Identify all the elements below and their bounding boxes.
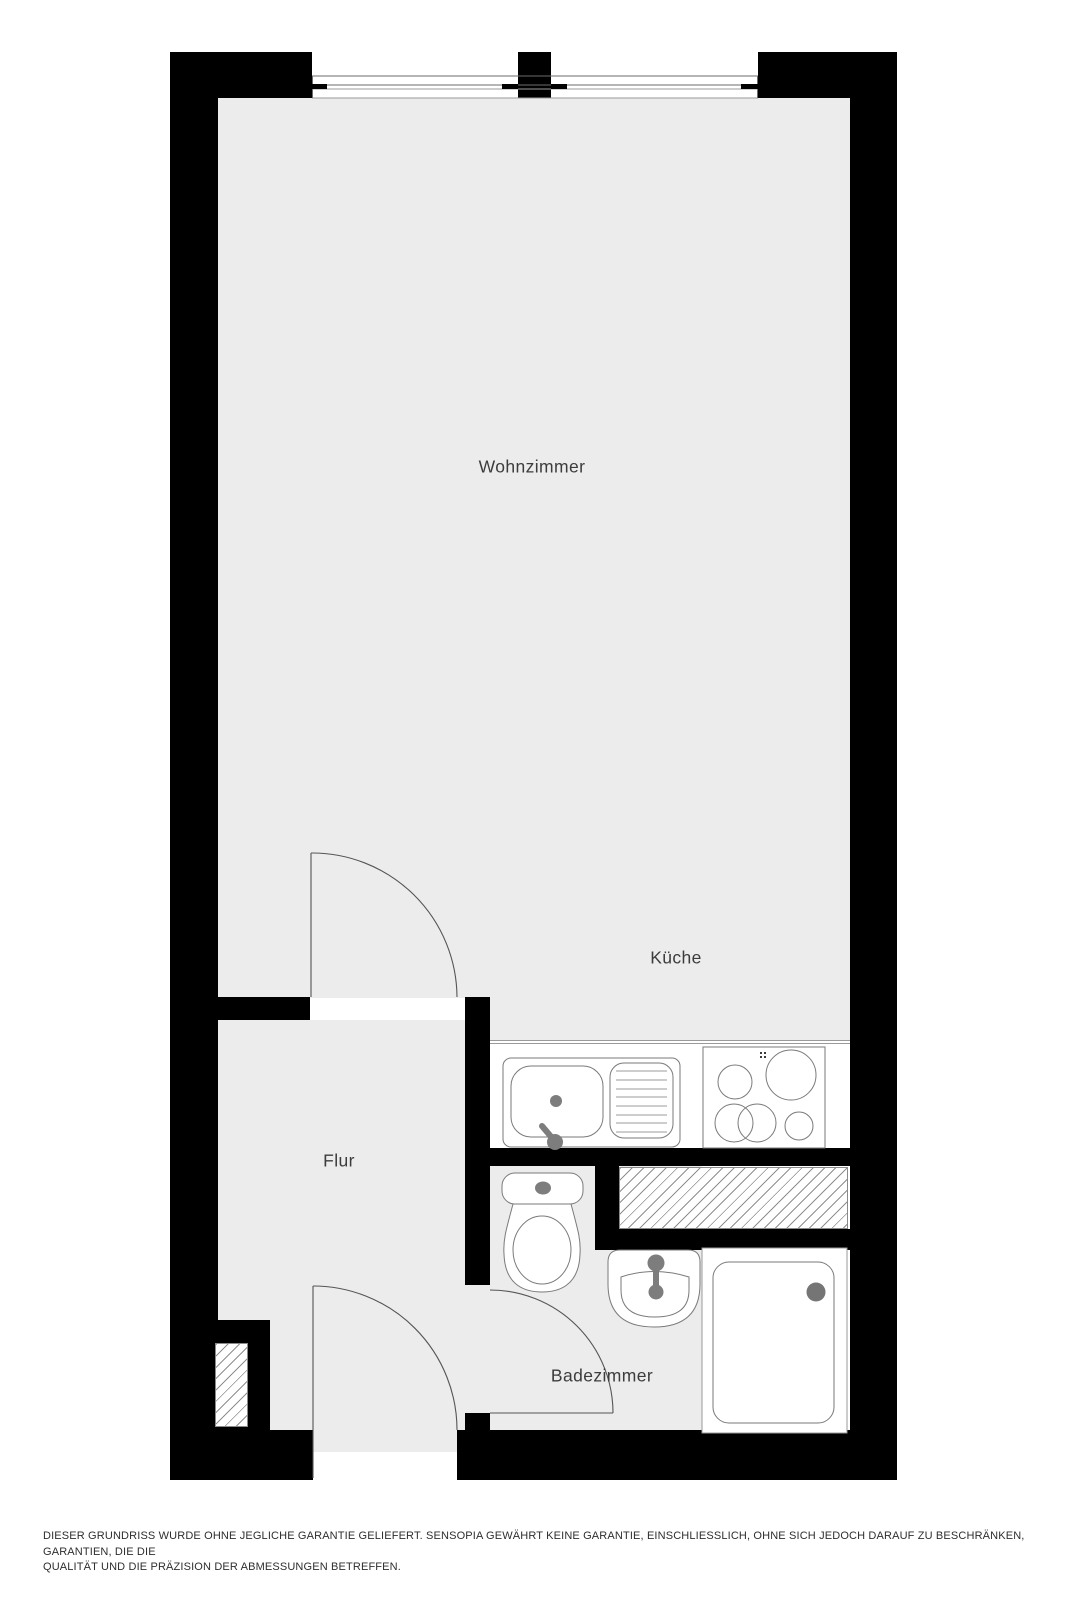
room-label-badezimmer: Badezimmer xyxy=(551,1366,653,1387)
entrance-door xyxy=(313,1286,457,1478)
interior-door xyxy=(311,853,457,997)
bathroom-door-swing-arc xyxy=(490,1290,613,1413)
kitchen-sink-drain xyxy=(550,1095,562,1107)
floor-plan-page: Wohnzimmer Küche Flur Badezimmer DIESER … xyxy=(0,0,1067,1600)
disclaimer-line-1: DIESER GRUNDRISS WURDE OHNE JEGLICHE GAR… xyxy=(43,1529,1033,1560)
room-label-flur: Flur xyxy=(323,1151,355,1172)
fixtures-layer xyxy=(0,0,1067,1600)
disclaimer: DIESER GRUNDRISS WURDE OHNE JEGLICHE GAR… xyxy=(43,1529,1033,1576)
shower xyxy=(702,1248,847,1433)
window xyxy=(310,76,758,98)
toilet xyxy=(502,1173,583,1292)
washbasin xyxy=(608,1250,700,1327)
shower-tray xyxy=(702,1248,847,1433)
window-tick xyxy=(741,84,758,89)
washbasin-faucet-base xyxy=(649,1285,664,1300)
drainboard xyxy=(610,1063,673,1138)
window-tick xyxy=(310,84,327,89)
room-label-kueche: Küche xyxy=(650,948,702,969)
bathroom-door xyxy=(490,1290,613,1413)
toilet-flush-button xyxy=(535,1182,551,1195)
disclaimer-line-2: QUALITÄT UND DIE PRÄZISION DER ABMESSUNG… xyxy=(43,1560,1033,1576)
room-label-wohnzimmer: Wohnzimmer xyxy=(479,457,586,478)
kitchen-sink xyxy=(503,1058,680,1150)
interior-door-swing-arc xyxy=(311,853,457,997)
cooktop xyxy=(703,1047,825,1148)
cooktop-body xyxy=(703,1047,825,1148)
window-tick xyxy=(502,84,518,89)
entrance-door-swing-arc xyxy=(313,1286,457,1430)
washbasin-faucet-head xyxy=(648,1255,665,1272)
kitchen-sink-faucet-base xyxy=(547,1134,563,1150)
shower-drain xyxy=(807,1283,826,1302)
toilet-bowl xyxy=(504,1204,580,1292)
window-tick xyxy=(551,84,567,89)
